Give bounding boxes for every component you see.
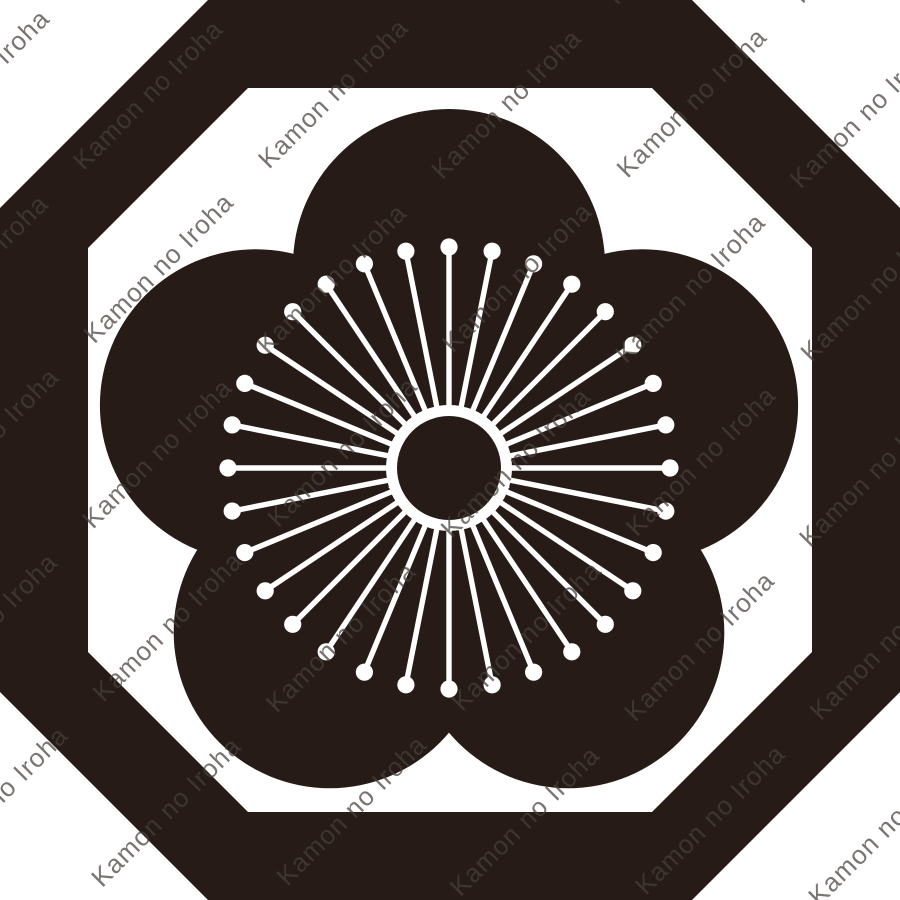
stamen-tip	[484, 676, 501, 693]
stamen-tip	[563, 643, 580, 660]
stamen-tip	[624, 582, 641, 599]
stamen-tip	[657, 416, 674, 433]
stamen-tip	[661, 459, 678, 476]
stamen-tip	[224, 503, 241, 520]
stamen-tip	[645, 375, 662, 392]
petal	[486, 249, 798, 561]
stamen-core	[397, 416, 501, 520]
stamen-tip	[397, 676, 414, 693]
stamen-tip	[224, 416, 241, 433]
stamen-tip	[397, 243, 414, 260]
stamen-tip	[440, 680, 457, 697]
stamen-tip	[525, 664, 542, 681]
stamen-tip	[624, 337, 641, 354]
stamen-tip	[318, 276, 335, 293]
stamen-tip	[440, 238, 457, 255]
stamen-tip	[284, 303, 301, 320]
stamen-tip	[597, 616, 614, 633]
plum-blossom-crest	[0, 0, 900, 900]
stamen-tip	[356, 664, 373, 681]
stamen-tip	[257, 337, 274, 354]
kamon-image: Kamon no IrohaKamon no IrohaKamon no Iro…	[0, 0, 900, 900]
stamen-tip	[484, 243, 501, 260]
stamen-tip	[525, 255, 542, 272]
stamen-tip	[356, 255, 373, 272]
stamen-tip	[597, 303, 614, 320]
stamen-tip	[645, 544, 662, 561]
stamen-tip	[563, 276, 580, 293]
stamen-tip	[236, 544, 253, 561]
stamen-tip	[284, 616, 301, 633]
stamen-tip	[236, 375, 253, 392]
stamen-tip	[318, 643, 335, 660]
stamen-tip	[657, 503, 674, 520]
stamen-tip	[219, 459, 236, 476]
stamen-tip	[257, 582, 274, 599]
